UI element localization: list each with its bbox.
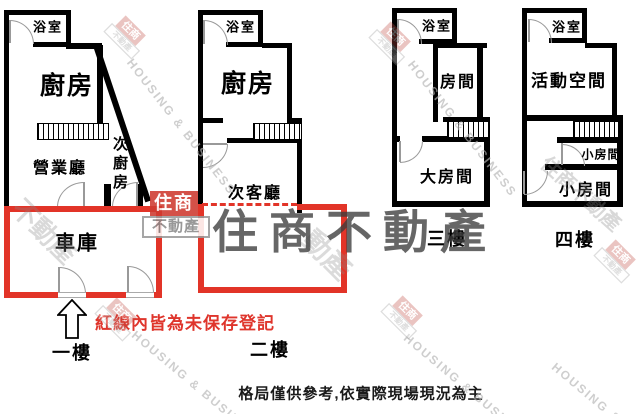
wall (287, 43, 292, 123)
door-leaf (561, 143, 563, 165)
logo-top-watermark: 住商 (115, 15, 146, 46)
wall (522, 201, 623, 207)
door-arc (128, 266, 154, 293)
door-leaf (58, 267, 60, 293)
door-leaf (523, 171, 525, 194)
floor-label-1f: 一樓 (52, 339, 92, 365)
wall (226, 42, 263, 47)
room-label-kitchen: 廚房 (221, 64, 275, 100)
red-note-text: 紅線內皆為未保存登記 (95, 309, 275, 334)
stairs (37, 123, 109, 140)
wall (477, 43, 483, 122)
logo-bottom-watermark: 不動產 (380, 303, 417, 340)
logo-bottom-watermark: 不動產 (103, 23, 140, 60)
room-label-big-room: 大房間 (420, 163, 474, 187)
door-arc (10, 20, 34, 44)
wall (612, 43, 617, 118)
red-dashed-line (202, 203, 297, 206)
wall (392, 201, 490, 207)
door-arc (203, 144, 228, 168)
room-label-sub-kitchen: 次廚房 (109, 136, 130, 193)
wall (198, 10, 263, 15)
disclaimer-text: 格局僅供參考,依實際現場現況為主 (238, 383, 483, 404)
door-arc (524, 171, 548, 195)
door-leaf (397, 19, 399, 43)
room-label-activity-space: 活動空間 (531, 67, 607, 92)
door-arc (398, 19, 422, 44)
room-label-business-hall: 營業廳 (33, 154, 87, 178)
room-label-garage: 車庫 (55, 227, 99, 256)
door-leaf (203, 20, 205, 44)
red-registration-line (4, 206, 162, 212)
entrance-arrow-icon (57, 299, 87, 339)
wall (392, 8, 457, 13)
room-label-small-room-lower: 小房間 (559, 176, 613, 200)
brand-logo-watermark: 住商 不動產 (103, 12, 150, 59)
door-opening (58, 292, 86, 298)
red-registration-line (198, 204, 204, 293)
floor-label-3f: 三樓 (427, 225, 467, 251)
door-leaf (136, 182, 138, 206)
logo-bottom-watermark: 不動產 (593, 247, 630, 284)
brand-logo-watermark: 住商 不動產 (593, 236, 640, 283)
room-label-kitchen: 廚房 (40, 66, 94, 102)
logo-top-watermark: 住商 (605, 239, 636, 270)
room-label-sub-living: 次客廳 (228, 179, 282, 203)
room-label-bathroom: 浴室 (422, 16, 452, 35)
stairs (447, 121, 490, 138)
door-arc (529, 19, 552, 43)
logo-top-watermark: 住商 (392, 295, 423, 326)
door-leaf (9, 20, 11, 43)
wall (198, 118, 223, 123)
room-label-bathroom: 浴室 (226, 17, 256, 36)
stairs (253, 123, 302, 140)
room-label-room: 房間 (440, 68, 476, 92)
wall (433, 43, 438, 122)
red-registration-line (4, 206, 10, 298)
wall (522, 8, 587, 13)
wall (4, 10, 71, 15)
floor-label-2f: 二樓 (250, 336, 290, 362)
door-arc (57, 182, 84, 207)
room-label-bathroom: 浴室 (33, 17, 63, 36)
red-registration-line (156, 206, 162, 298)
brand-logo-watermark: 住商 不動產 (380, 292, 427, 339)
door-leaf (399, 141, 401, 162)
room-label-small-room-upper: 小房間 (581, 146, 620, 163)
floor-label-4f: 四樓 (555, 226, 595, 252)
door-arc (204, 20, 228, 45)
red-registration-line (341, 204, 347, 293)
floor-plan-canvas: HOUSING & BUSINESS HOUSING & BUSINESS HO… (0, 0, 640, 414)
red-registration-line (198, 287, 347, 293)
door-leaf (528, 19, 530, 42)
room-label-bathroom: 浴室 (552, 17, 582, 36)
brand-text-watermark: 動產 (294, 220, 362, 288)
housing-business-watermark: HOUSING & BUSINESS (549, 360, 640, 414)
stairs (573, 121, 619, 138)
wall (549, 38, 587, 43)
door-leaf (127, 266, 129, 292)
door-arc (59, 267, 86, 294)
red-registration-line (297, 204, 347, 210)
door-arc (400, 141, 423, 163)
door-opening (126, 292, 154, 298)
door-leaf (83, 182, 85, 206)
door-leaf (203, 143, 227, 145)
